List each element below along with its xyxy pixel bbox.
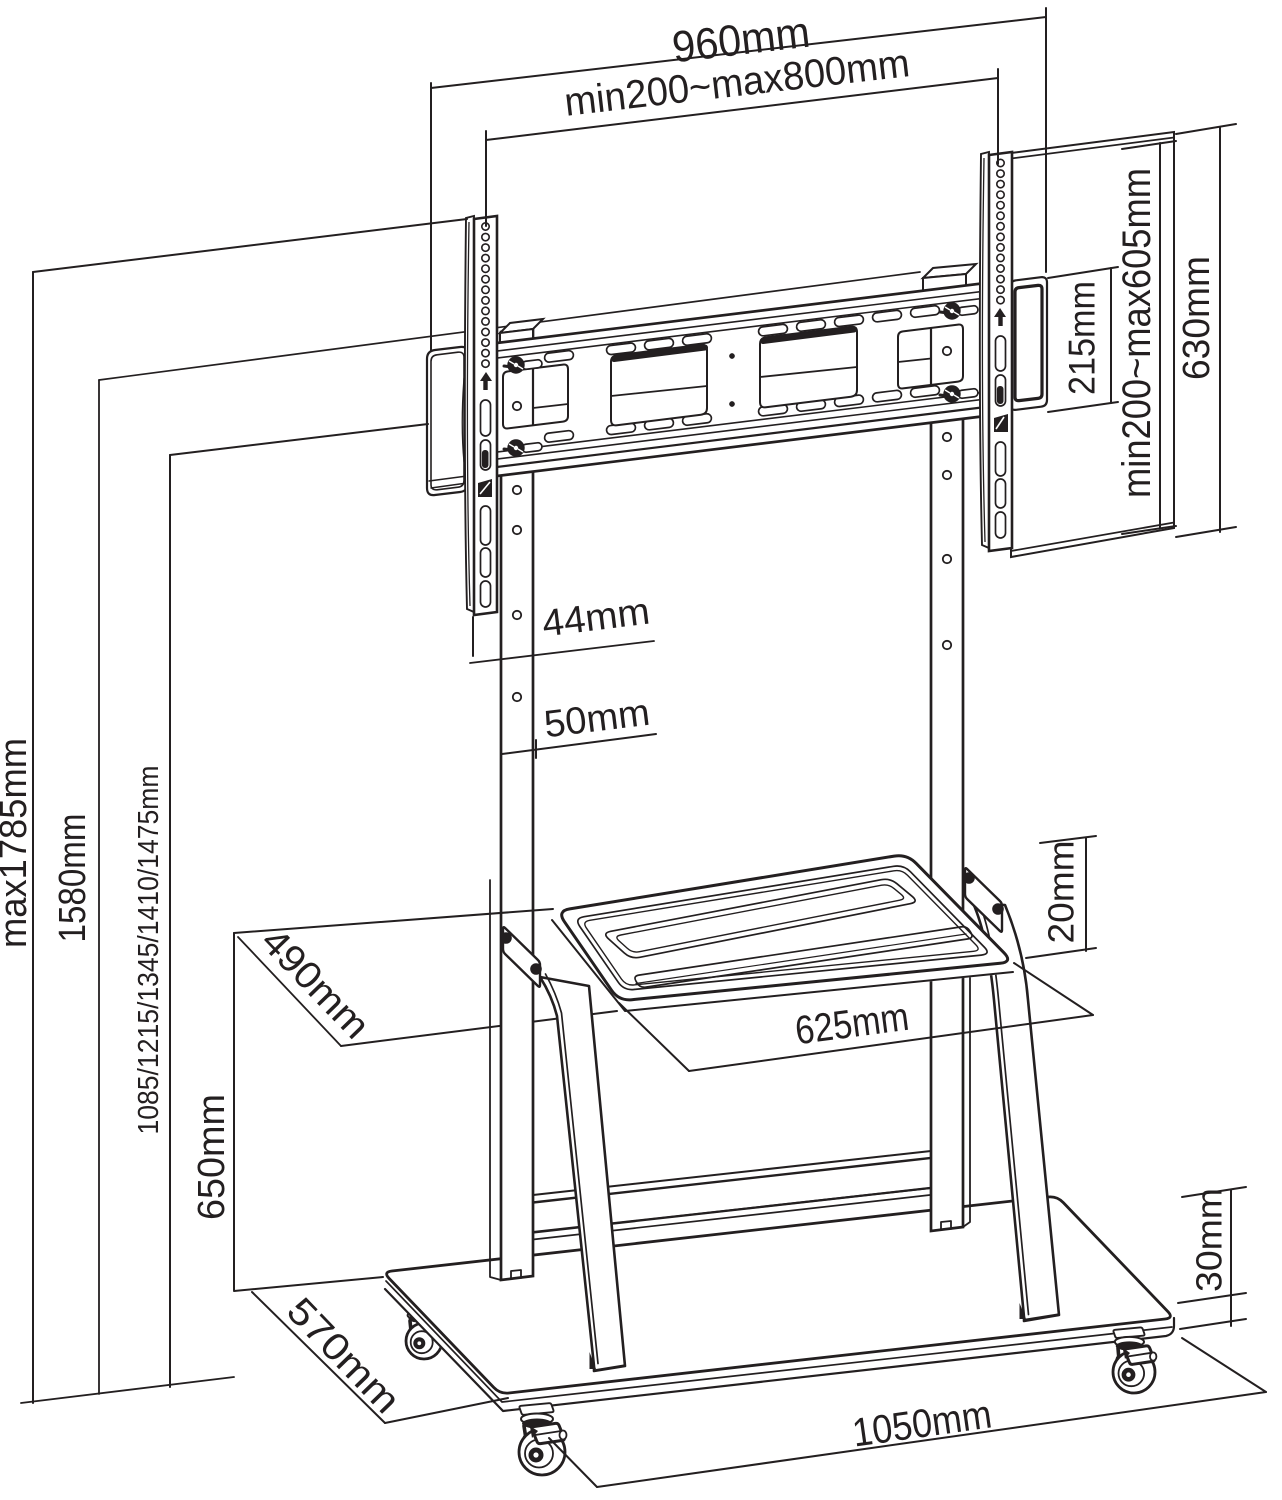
svg-text:650mm: 650mm [191,1094,233,1220]
svg-text:min200~max605mm: min200~max605mm [1115,168,1159,498]
svg-text:215mm: 215mm [1062,281,1103,395]
svg-text:max1785mm: max1785mm [0,738,35,948]
svg-text:1085/1215/1345/1410/1475mm: 1085/1215/1345/1410/1475mm [133,766,165,1135]
svg-text:630mm: 630mm [1176,256,1218,380]
svg-text:20mm: 20mm [1041,841,1082,944]
svg-text:1580mm: 1580mm [52,814,94,943]
svg-text:30mm: 30mm [1189,1188,1230,1292]
